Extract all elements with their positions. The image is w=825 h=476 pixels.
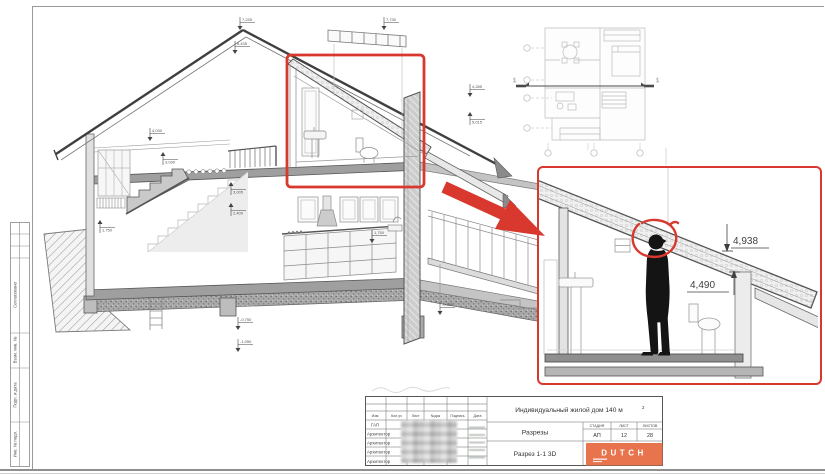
section-mark-left: 1	[513, 78, 516, 84]
upper-left-room	[97, 150, 130, 208]
elevation-label: 7,730	[386, 17, 397, 22]
col-header: Изм.	[372, 414, 380, 418]
dim-upper: 4,938	[733, 236, 758, 247]
doc-title: Разрезы	[522, 430, 549, 437]
blurred-dates	[469, 422, 485, 464]
view-title: Разрез 1-1 3D	[514, 451, 557, 458]
elevation-label: 7,245	[242, 17, 253, 22]
col-header: Лист	[412, 414, 420, 418]
svg-text:12: 12	[621, 433, 627, 439]
svg-text:Индивидуальный жилой дом 140 м: Индивидуальный жилой дом 140 м	[515, 406, 623, 414]
stamp-label: Взам. инв. №	[13, 336, 18, 363]
stamp-label: Согласовано	[13, 281, 18, 307]
logo-subtext-bar	[593, 461, 602, 462]
svg-text:АП: АП	[593, 433, 601, 439]
blurred-signatures	[401, 420, 457, 463]
svg-text:ЛИСТОВ: ЛИСТОВ	[643, 424, 658, 428]
floor-plan: 1 1	[513, 28, 666, 165]
elevation-label: 3,005	[233, 190, 244, 195]
detail-drawing: 4,938 4,490	[539, 168, 818, 381]
dutch-logo-text: DUTCH	[601, 449, 647, 458]
col-header: Кол.уч	[391, 414, 402, 418]
elevation-label: -0,750	[240, 317, 252, 322]
section-mark-right: 1	[656, 78, 659, 84]
stamp-label: Подп. и дата	[13, 382, 18, 408]
elevation-label: 1,750	[374, 230, 385, 235]
kitchen	[282, 196, 402, 280]
side-stamp: Согласовано Взам. инв. № Подп. и дата Ин…	[10, 222, 30, 467]
handwriting-squiggle	[372, 387, 450, 392]
role-cell: Архитектор	[367, 450, 391, 455]
detail-floor	[545, 354, 763, 376]
dutch-logo: DUTCH	[586, 443, 663, 466]
role-cell: ГАП	[371, 423, 379, 428]
svg-text:СТАДИЯ: СТАДИЯ	[590, 424, 605, 428]
elevation-label: 2,400	[233, 211, 244, 216]
svg-text:28: 28	[647, 433, 653, 439]
right-cut-wall	[404, 92, 420, 344]
elevation-label: 4,285	[472, 84, 483, 89]
role-cell: Архитектор	[367, 432, 391, 437]
detail-callout: 4,938 4,490	[537, 166, 822, 385]
drawing-sheet: 1 1 7,730 7,245 6,435 4,030 3,030 3,005 …	[0, 0, 825, 476]
role-cell: Архитектор	[367, 441, 391, 446]
elevation-label: 6,435	[237, 41, 248, 46]
elevation-label: 3,030	[165, 160, 176, 165]
elevation-label: -1,050	[240, 339, 252, 344]
logo-subtext-bar	[593, 459, 607, 460]
col-header: Дата	[474, 414, 482, 418]
role-cell: Архитектор	[367, 459, 391, 464]
elevation-label: -0,350	[442, 302, 454, 307]
stage-header: СТАДИЯ ЛИСТ ЛИСТОВ	[590, 424, 658, 428]
stair-railing	[228, 146, 276, 168]
elevation-label: 4,030	[152, 128, 163, 133]
person-silhouette	[641, 235, 670, 356]
dim-lower: 4,490	[690, 280, 715, 291]
svg-text:ЛИСТ: ЛИСТ	[619, 424, 629, 428]
elevation-label: 1,750	[102, 228, 113, 233]
col-header: №док	[431, 414, 441, 418]
elevation-label: 5,015	[472, 120, 483, 125]
stamp-label: Инв. № подл.	[13, 431, 18, 458]
col-header: Подпись	[450, 414, 464, 418]
